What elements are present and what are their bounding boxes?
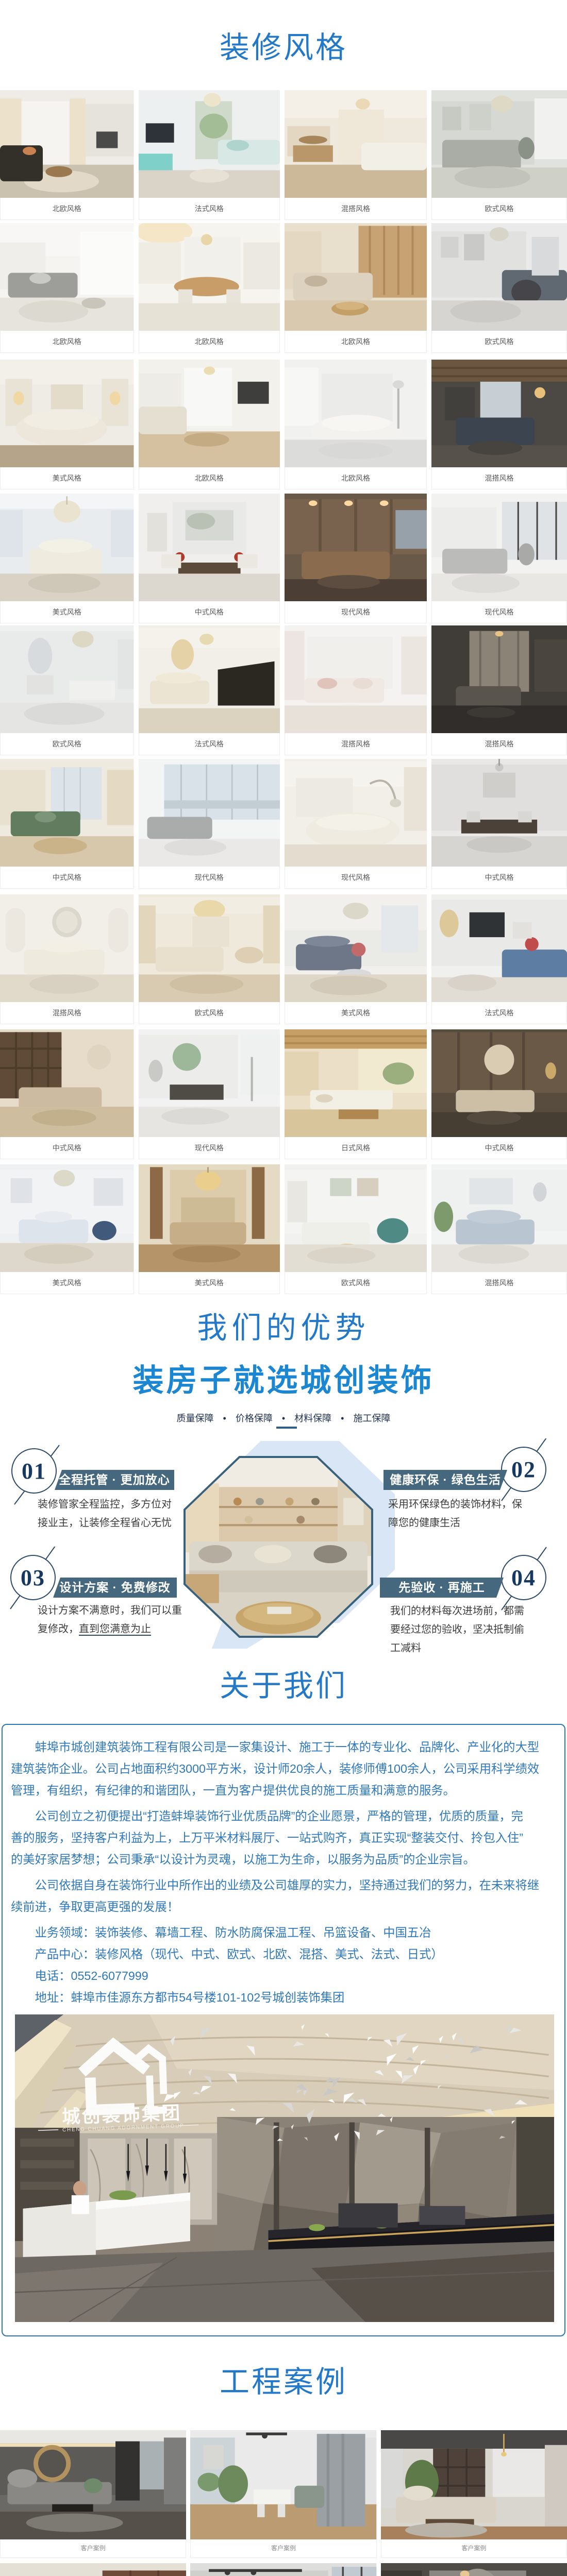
svg-text:03: 03 — [21, 1565, 45, 1590]
svg-text:01: 01 — [22, 1459, 46, 1484]
svg-text:02: 02 — [511, 1457, 536, 1482]
svg-text:04: 04 — [511, 1565, 536, 1590]
